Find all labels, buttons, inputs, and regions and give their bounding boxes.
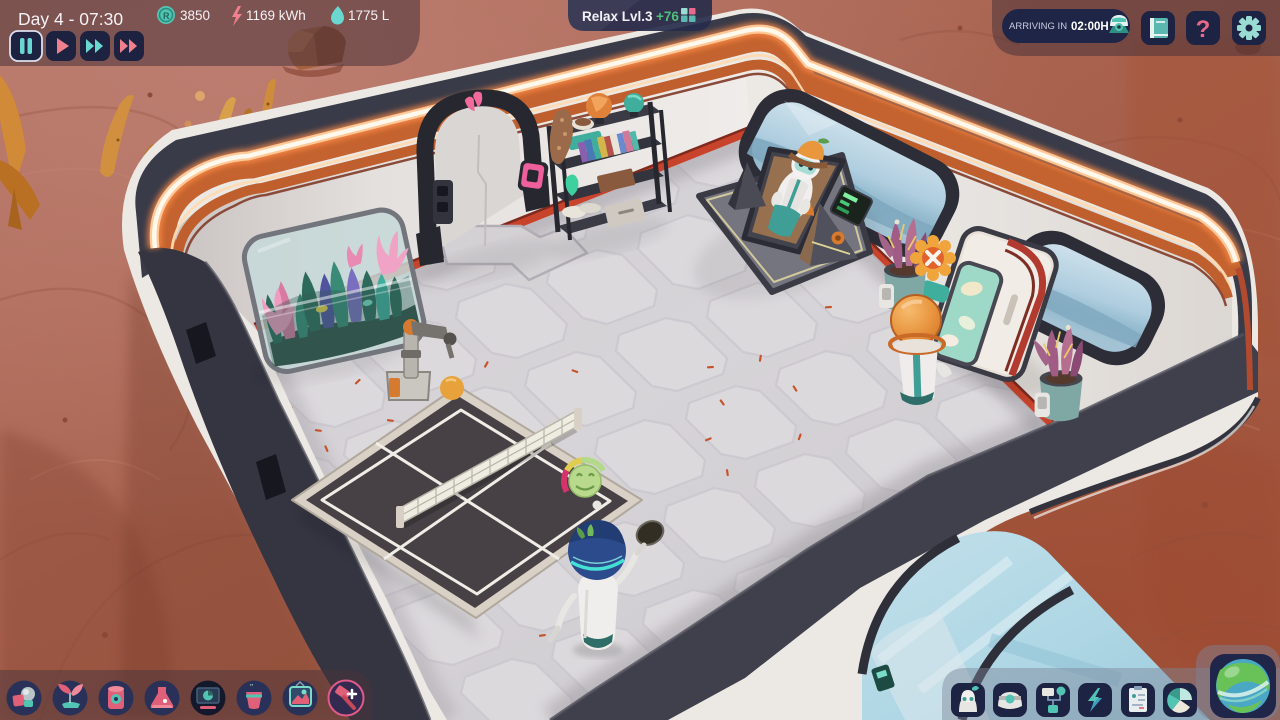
svg-text:+76: +76	[656, 9, 679, 24]
svg-text:ARRIVING IN: ARRIVING IN	[1009, 21, 1067, 32]
svg-text:?: ?	[1196, 16, 1211, 43]
svg-text:Relax Lvl.3: Relax Lvl.3	[582, 9, 653, 24]
svg-text:1775 L: 1775 L	[348, 8, 390, 23]
svg-text:R: R	[163, 11, 170, 21]
svg-text:1169 kWh: 1169 kWh	[246, 8, 306, 23]
svg-text:3850: 3850	[180, 8, 210, 23]
svg-text:02:00H: 02:00H	[1071, 21, 1109, 33]
svg-text:Day 4 - 07:30: Day 4 - 07:30	[18, 9, 123, 29]
svg-text:'': ''	[250, 683, 254, 692]
